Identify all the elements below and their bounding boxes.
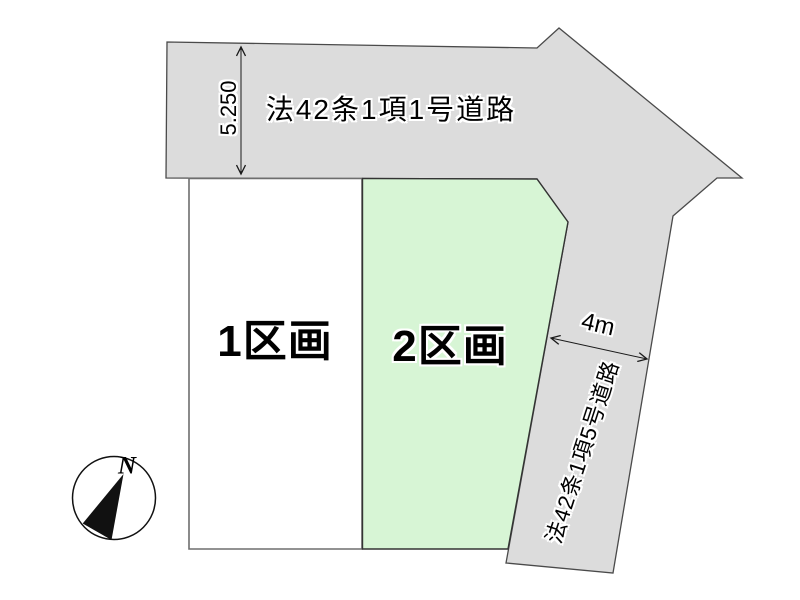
compass-icon xyxy=(73,457,156,541)
site-plan-svg xyxy=(0,0,800,600)
road-1-label: 法42条1項1号道路 xyxy=(266,96,516,124)
dimension-5250-label: 5.250 xyxy=(218,80,240,135)
plot-diagram: 法42条1項1号道路 5.250 4m 法42条1項5号道路 1区画 2区画 N xyxy=(0,0,800,600)
plot-2-label: 2区画 xyxy=(392,325,507,369)
plot-1-label: 1区画 xyxy=(217,320,332,364)
compass-north-label: N xyxy=(118,454,136,479)
